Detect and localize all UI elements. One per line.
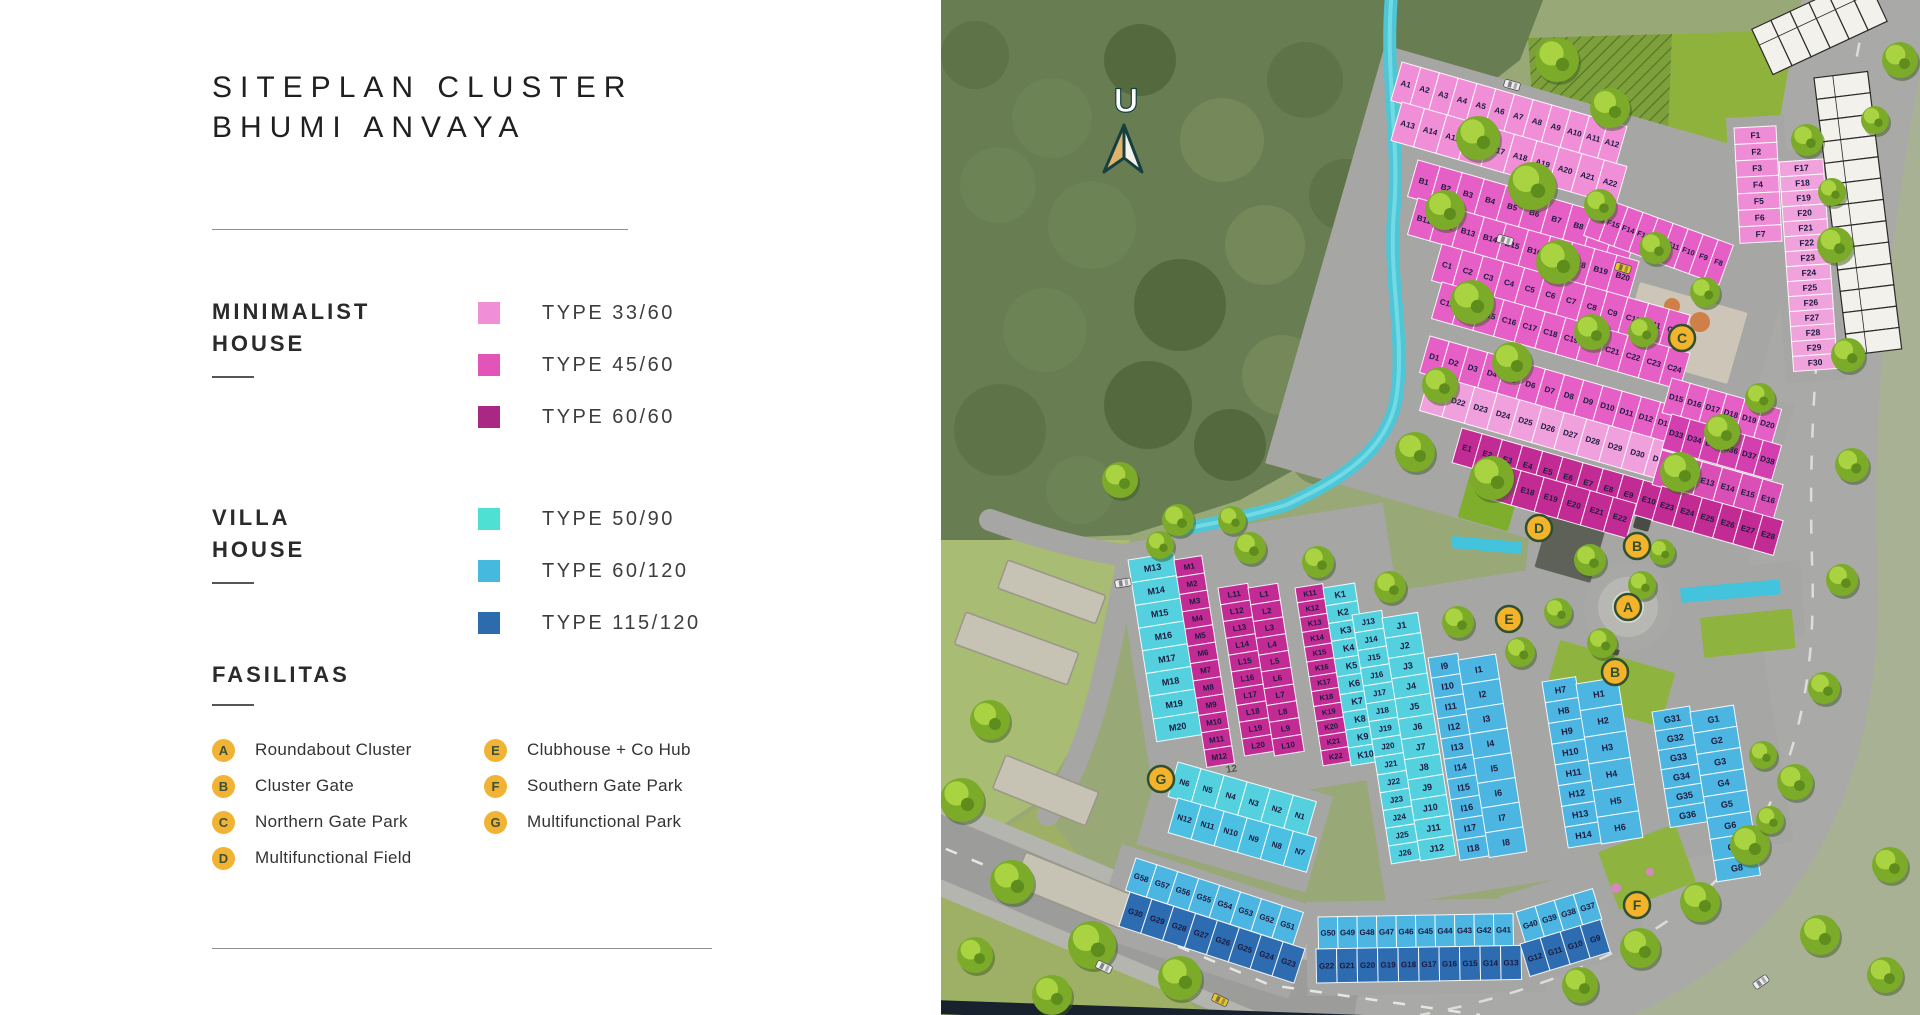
facility-badge-e: E xyxy=(484,739,507,762)
legend-item-type-60-120: TYPE 60/120 xyxy=(478,556,701,586)
fasilitas-item-label: Northern Gate Park xyxy=(255,812,408,832)
lot-label-h5: H5 xyxy=(1609,795,1622,807)
lot-label-g49: G49 xyxy=(1340,928,1356,937)
fasilitas-item-label: Multifunctional Field xyxy=(255,848,412,868)
title-line1: SITEPLAN CLUSTER xyxy=(212,71,633,104)
map-badge-letter: A xyxy=(1623,599,1633,615)
lot-label-f2: F2 xyxy=(1751,146,1762,157)
lot-label-g21: G21 xyxy=(1339,961,1355,970)
lot-label-f18: F18 xyxy=(1795,177,1811,188)
legend-item-type-45-60: TYPE 45/60 xyxy=(478,350,675,380)
lot-label-h7: H7 xyxy=(1554,684,1567,696)
lot-label-j9: J9 xyxy=(1421,782,1432,793)
map-badge-letter: B xyxy=(1632,538,1642,554)
fasilitas-item-d: DMultifunctional Field xyxy=(212,844,484,872)
lot-label-h2: H2 xyxy=(1597,715,1610,727)
legend-section-villa: VILLAHOUSETYPE 50/90TYPE 60/120TYPE 115/… xyxy=(212,502,812,660)
fasilitas-item-label: Cluster Gate xyxy=(255,776,354,796)
lot-label-i17: I17 xyxy=(1463,822,1477,834)
lot-label-i3: I3 xyxy=(1482,713,1491,724)
legend-item-label: TYPE 115/120 xyxy=(542,612,701,635)
map-badge-letter: B xyxy=(1610,664,1620,680)
lot-label-m3: M3 xyxy=(1189,596,1202,607)
lot-label-f24: F24 xyxy=(1801,267,1817,278)
legend-item-type-60-60: TYPE 60/60 xyxy=(478,402,675,432)
legend-item-type-115-120: TYPE 115/120 xyxy=(478,608,701,638)
siteplan-page: A1A2A3A4A5A6A7A8A9A10A11A12A13A14A15A16A… xyxy=(0,0,1920,1015)
map-badge-d: D xyxy=(1526,515,1552,541)
lot-label-g41: G41 xyxy=(1496,925,1512,934)
map-badge-a: A xyxy=(1615,594,1641,620)
lot-label-g47: G47 xyxy=(1379,927,1395,936)
map-badge-letter: E xyxy=(1504,611,1513,627)
lot-label-f27: F27 xyxy=(1804,312,1820,323)
forest-canopy xyxy=(941,21,1009,89)
forest-canopy xyxy=(1104,361,1192,449)
lot-label-m8: M8 xyxy=(1202,682,1215,693)
lot-label-m2: M2 xyxy=(1186,579,1199,590)
lot-label-g17: G17 xyxy=(1421,960,1437,969)
lot-label-g44: G44 xyxy=(1437,926,1453,935)
heading-underline xyxy=(212,704,254,706)
lot-label-k7: K7 xyxy=(1351,695,1364,707)
lot-label-j3: J3 xyxy=(1402,660,1413,671)
lot-label-g18: G18 xyxy=(1401,960,1417,969)
lot-label-k9: K9 xyxy=(1356,731,1369,743)
fasilitas-legend: FASILITAS ARoundabout ClusterBCluster Ga… xyxy=(212,662,832,880)
legend-item-type-50-90: TYPE 50/90 xyxy=(478,504,701,534)
forest-canopy xyxy=(1012,78,1092,158)
color-swatch xyxy=(478,612,500,634)
fasilitas-item-label: Clubhouse + Co Hub xyxy=(527,740,691,760)
road-label: 12 xyxy=(1225,763,1238,776)
lot-label-j5: J5 xyxy=(1409,701,1420,712)
forest-canopy xyxy=(1134,259,1226,351)
lot-label-h9: H9 xyxy=(1561,726,1574,738)
lot-label-k4: K4 xyxy=(1342,642,1355,654)
lot-label-g42: G42 xyxy=(1476,926,1492,935)
lot-label-g20: G20 xyxy=(1360,961,1376,970)
lot-label-g4: G4 xyxy=(1717,777,1730,789)
lot-label-i2: I2 xyxy=(1478,689,1487,700)
facility-badge-f: F xyxy=(484,775,507,798)
lot-label-f21: F21 xyxy=(1798,222,1814,233)
house-type-legend: MINIMALISTHOUSETYPE 33/60TYPE 45/60TYPE … xyxy=(212,296,812,708)
legend-panel: SITEPLAN CLUSTER BHUMI ANVAYA MINIMALIST… xyxy=(0,0,941,1015)
map-badge-b: B xyxy=(1602,659,1628,685)
section-heading: MINIMALISTHOUSE xyxy=(212,296,478,454)
legend-item-label: TYPE 60/60 xyxy=(542,406,675,429)
lot-label-f29: F29 xyxy=(1806,342,1822,353)
lot-label-j7: J7 xyxy=(1415,741,1426,752)
lot-label-i11: I11 xyxy=(1444,701,1457,713)
lot-label-h8: H8 xyxy=(1557,705,1570,717)
lot-label-h6: H6 xyxy=(1614,822,1627,834)
lot-label-g5: G5 xyxy=(1720,798,1733,810)
forest-canopy xyxy=(1267,42,1343,118)
lot-label-h3: H3 xyxy=(1601,742,1614,754)
lot-label-m5: M5 xyxy=(1194,630,1207,641)
lot-label-f6: F6 xyxy=(1755,212,1766,223)
fasilitas-item-label: Roundabout Cluster xyxy=(255,740,412,760)
lot-label-i14: I14 xyxy=(1454,761,1468,773)
forest-canopy xyxy=(954,384,1046,476)
lot-label-g50: G50 xyxy=(1320,928,1336,937)
map-badge-c: C xyxy=(1669,325,1695,351)
color-swatch xyxy=(478,302,500,324)
lot-label-i16: I16 xyxy=(1460,802,1474,814)
lot-label-k1: K1 xyxy=(1334,589,1347,601)
forest-canopy xyxy=(1225,205,1305,285)
lot-label-g13: G13 xyxy=(1503,958,1519,967)
map-badge-letter: G xyxy=(1156,771,1167,787)
divider-top xyxy=(212,229,628,230)
facility-badge-d: D xyxy=(212,847,235,870)
facility-badge-c: C xyxy=(212,811,235,834)
facility-patch xyxy=(1646,868,1654,876)
fasilitas-heading: FASILITAS xyxy=(212,662,832,688)
lot-label-f7: F7 xyxy=(1755,229,1766,240)
lot-label-f3: F3 xyxy=(1752,163,1763,174)
facility-badge-a: A xyxy=(212,739,235,762)
section-heading: VILLAHOUSE xyxy=(212,502,478,660)
fasilitas-item-label: Multifunctional Park xyxy=(527,812,681,832)
lot-label-j2: J2 xyxy=(1399,640,1410,651)
lot-label-g48: G48 xyxy=(1359,928,1375,937)
map-badge-letter: C xyxy=(1677,330,1687,346)
forest-canopy xyxy=(1180,98,1264,182)
forest-canopy xyxy=(1048,181,1136,269)
lot-row-g50: G50G49G48G47G46G45G44G43G42G41 xyxy=(1318,914,1514,949)
color-swatch xyxy=(478,354,500,376)
lot-label-f19: F19 xyxy=(1796,192,1812,203)
legend-item-label: TYPE 50/90 xyxy=(542,508,675,531)
lot-label-m4: M4 xyxy=(1191,613,1204,624)
map-badge-e: E xyxy=(1496,606,1522,632)
page-title: SITEPLAN CLUSTER BHUMI ANVAYA xyxy=(212,68,633,148)
lot-label-i1: I1 xyxy=(1474,664,1483,675)
lot-label-f22: F22 xyxy=(1799,237,1815,248)
lot-label-k8: K8 xyxy=(1353,713,1366,725)
forest-canopy xyxy=(1046,456,1114,524)
lot-label-g1: G1 xyxy=(1707,713,1720,725)
color-swatch xyxy=(478,508,500,530)
lot-label-j1: J1 xyxy=(1396,620,1407,631)
fasilitas-item-b: BCluster Gate xyxy=(212,772,484,800)
lot-label-k3: K3 xyxy=(1339,624,1352,636)
divider-bottom xyxy=(212,948,712,949)
lot-label-j8: J8 xyxy=(1418,761,1429,772)
map-badge-f: F xyxy=(1624,892,1650,918)
lot-row-g22: G22G21G20G19G18G17G16G15G14G13 xyxy=(1316,945,1522,983)
lot-label-g15: G15 xyxy=(1462,959,1478,968)
legend-section-minimalist: MINIMALISTHOUSETYPE 33/60TYPE 45/60TYPE … xyxy=(212,296,812,454)
lot-label-g16: G16 xyxy=(1442,959,1458,968)
lot-label-f28: F28 xyxy=(1805,327,1821,338)
lot-label-k6: K6 xyxy=(1348,678,1361,690)
lot-label-i13: I13 xyxy=(1450,741,1464,753)
lot-label-i10: I10 xyxy=(1441,680,1455,692)
map-badge-g: G xyxy=(1148,766,1174,792)
lot-label-j6: J6 xyxy=(1412,721,1423,732)
lot-row-f1: F1F2F3F4F5F6F7 xyxy=(1734,126,1782,244)
lot-label-f1: F1 xyxy=(1750,130,1761,141)
fasilitas-item-e: EClubhouse + Co Hub xyxy=(484,736,756,764)
fasilitas-item-f: FSouthern Gate Park xyxy=(484,772,756,800)
lot-label-g19: G19 xyxy=(1380,960,1396,969)
lot-label-k2: K2 xyxy=(1337,606,1350,618)
fasilitas-item-c: CNorthern Gate Park xyxy=(212,808,484,836)
lot-label-i18: I18 xyxy=(1466,842,1480,854)
facility-badge-g: G xyxy=(484,811,507,834)
fasilitas-item-a: ARoundabout Cluster xyxy=(212,736,484,764)
facility-patch xyxy=(1611,883,1621,893)
lot-label-i12: I12 xyxy=(1447,721,1461,733)
lot-label-f20: F20 xyxy=(1797,207,1813,218)
lot-label-g2: G2 xyxy=(1710,735,1723,747)
lot-label-f26: F26 xyxy=(1803,297,1819,308)
lot-label-i7: I7 xyxy=(1498,812,1507,823)
lot-label-i5: I5 xyxy=(1490,763,1499,774)
facility-badge-b: B xyxy=(212,775,235,798)
forest-canopy xyxy=(960,147,1036,223)
lot-label-i9: I9 xyxy=(1440,660,1449,671)
fasilitas-item-label: Southern Gate Park xyxy=(527,776,683,796)
forest-canopy xyxy=(1194,409,1266,481)
legend-item-label: TYPE 60/120 xyxy=(542,560,688,583)
lot-label-f25: F25 xyxy=(1802,282,1818,293)
lot-label-g43: G43 xyxy=(1457,926,1473,935)
lot-label-g45: G45 xyxy=(1418,927,1434,936)
lot-label-g14: G14 xyxy=(1483,959,1499,968)
lot-label-m7: M7 xyxy=(1199,665,1212,676)
lot-label-m1: M1 xyxy=(1183,561,1196,572)
map-badge-letter: F xyxy=(1633,897,1642,913)
lot-label-g22: G22 xyxy=(1319,961,1335,970)
map-badge-b: B xyxy=(1624,533,1650,559)
lot-label-h4: H4 xyxy=(1605,768,1618,780)
lot-label-j4: J4 xyxy=(1405,680,1416,691)
lot-label-g46: G46 xyxy=(1398,927,1414,936)
north-label: U xyxy=(1114,82,1139,120)
lot-label-h1: H1 xyxy=(1592,688,1605,700)
lot-label-f5: F5 xyxy=(1754,196,1765,207)
lot-label-i6: I6 xyxy=(1494,787,1503,798)
forest-canopy xyxy=(1003,288,1087,372)
lot-label-g3: G3 xyxy=(1713,756,1726,768)
title-line2: BHUMI ANVAYA xyxy=(212,111,526,144)
legend-item-label: TYPE 45/60 xyxy=(542,354,675,377)
lot-label-f30: F30 xyxy=(1807,357,1823,368)
lot-label-i8: I8 xyxy=(1502,837,1511,848)
lot-label-i4: I4 xyxy=(1486,738,1495,749)
lot-label-f17: F17 xyxy=(1794,162,1810,173)
legend-item-type-33-60: TYPE 33/60 xyxy=(478,298,675,328)
lot-label-f4: F4 xyxy=(1753,179,1764,190)
lot-label-k5: K5 xyxy=(1345,660,1358,672)
lot-label-m9: M9 xyxy=(1205,700,1218,711)
legend-item-label: TYPE 33/60 xyxy=(542,302,675,325)
color-swatch xyxy=(478,560,500,582)
map-badge-letter: D xyxy=(1534,520,1544,536)
lot-label-g6: G6 xyxy=(1724,820,1737,832)
lot-label-i15: I15 xyxy=(1457,781,1471,793)
lot-label-f23: F23 xyxy=(1800,252,1816,263)
lot-label-m6: M6 xyxy=(1197,648,1210,659)
color-swatch xyxy=(478,406,500,428)
fasilitas-item-g: GMultifunctional Park xyxy=(484,808,756,836)
